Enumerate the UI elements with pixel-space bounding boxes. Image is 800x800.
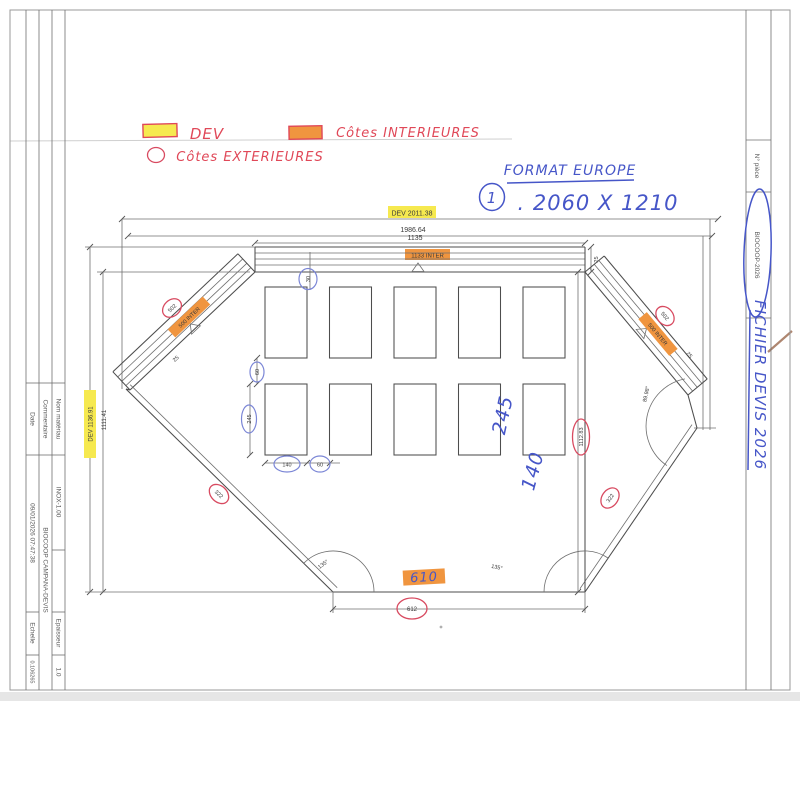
flange-left-dim: 25 (172, 355, 181, 364)
svg-text:322: 322 (213, 489, 224, 500)
svg-text:502: 502 (659, 311, 670, 322)
flat-pattern-drawing: DEV 2011.38 1986.64 1135 1133 INTER 25 (84, 206, 721, 619)
legend-dev-swatch (143, 124, 177, 138)
col-gap-dim: 60 (317, 463, 323, 469)
comment-value: BIOCOOP CAMPANA-DEVIS (42, 527, 49, 613)
pencil-mark (768, 331, 792, 352)
part-number-strip: N° pièce BIOCOOP-2026 FICHIER DEVIS 2026 (742, 10, 773, 690)
legend: DEV Côtes INTERIEURES Côtes EXTERIEURES (143, 124, 480, 165)
title-block: Date 09/01/2026 07:47:38 Echelle 0.10626… (26, 10, 65, 690)
svg-text:322: 322 (606, 493, 616, 504)
scan-artifacts (0, 139, 800, 701)
bottom-left-diag-dim: 322 (206, 481, 233, 508)
width-note2: 140 (517, 449, 548, 493)
angle-right: 89.98° (642, 386, 651, 403)
height-note: 245 (488, 394, 518, 437)
part-number-label: N° pièce (753, 154, 761, 179)
thickness-value: 1.0 (55, 667, 62, 676)
hole-height-dim: 245 (247, 414, 253, 423)
top-offset-dim: 30 (306, 276, 312, 282)
drawing-canvas: Date 09/01/2026 07:47:38 Echelle 0.10626… (0, 0, 800, 800)
bottom-right-diag-dim: 322 (597, 484, 623, 511)
file-note: FICHIER DEVIS 2026 (751, 300, 769, 470)
dev-width-dim: DEV 2011.38 (391, 211, 432, 218)
scale-value: 0.106265 (29, 661, 35, 684)
format-value: . 2060 X 1210 (518, 191, 679, 215)
angle-bottom-left: 135° (317, 559, 330, 571)
thickness-label: Epaisseur (55, 619, 62, 649)
flange-right-dim: 25 (684, 351, 693, 360)
bottom-width-note: 610 (403, 568, 446, 586)
bend-mark-top (412, 263, 424, 272)
outer-width-dim: 1986.64 (400, 227, 425, 234)
comment-label: Commentaire (42, 399, 49, 438)
left-height-dim: 1111.41 (102, 409, 108, 430)
material-value: INOX-1.00 (55, 487, 62, 518)
svg-text:610: 610 (410, 570, 439, 586)
note-underline (748, 310, 750, 470)
top-width-dim: 1135 (407, 235, 422, 242)
hole-grid (265, 287, 565, 455)
legend-exter-circle (148, 148, 165, 163)
scale-label: Echelle (29, 622, 36, 644)
part-number-value: BIOCOOP-2026 (753, 232, 760, 279)
legend-dev-label: DEV (190, 125, 225, 143)
date-label: Date (29, 412, 36, 426)
angle-bottom-right: 135° (491, 564, 503, 572)
format-index: 1 (487, 189, 498, 207)
bottom-width-dim: 612 (407, 607, 418, 613)
right-height-dim: 1112.83 (579, 427, 585, 446)
dev-height-dim: DEV 1136.91 (84, 390, 96, 458)
legend-exter-label: Côtes EXTERIEURES (176, 150, 323, 165)
format-title: FORMAT EUROPE (504, 163, 637, 179)
legend-inter-label: Côtes INTERIEURES (336, 126, 480, 141)
material-label: Nom matériau (55, 399, 62, 440)
hole-width-dim: 140 (282, 463, 291, 469)
left-diag-inter-dim: 500 INTER (168, 297, 210, 338)
legend-inter-swatch (289, 126, 322, 140)
date-value: 09/01/2026 07:47:38 (29, 503, 36, 563)
scanned-drawing-sheet: Date 09/01/2026 07:47:38 Echelle 0.10626… (0, 0, 800, 800)
svg-text:DEV 1136.91: DEV 1136.91 (89, 406, 95, 442)
row-gap-dim: 60 (255, 369, 261, 375)
format-note: FORMAT EUROPE 1 . 2060 X 1210 (480, 163, 679, 215)
